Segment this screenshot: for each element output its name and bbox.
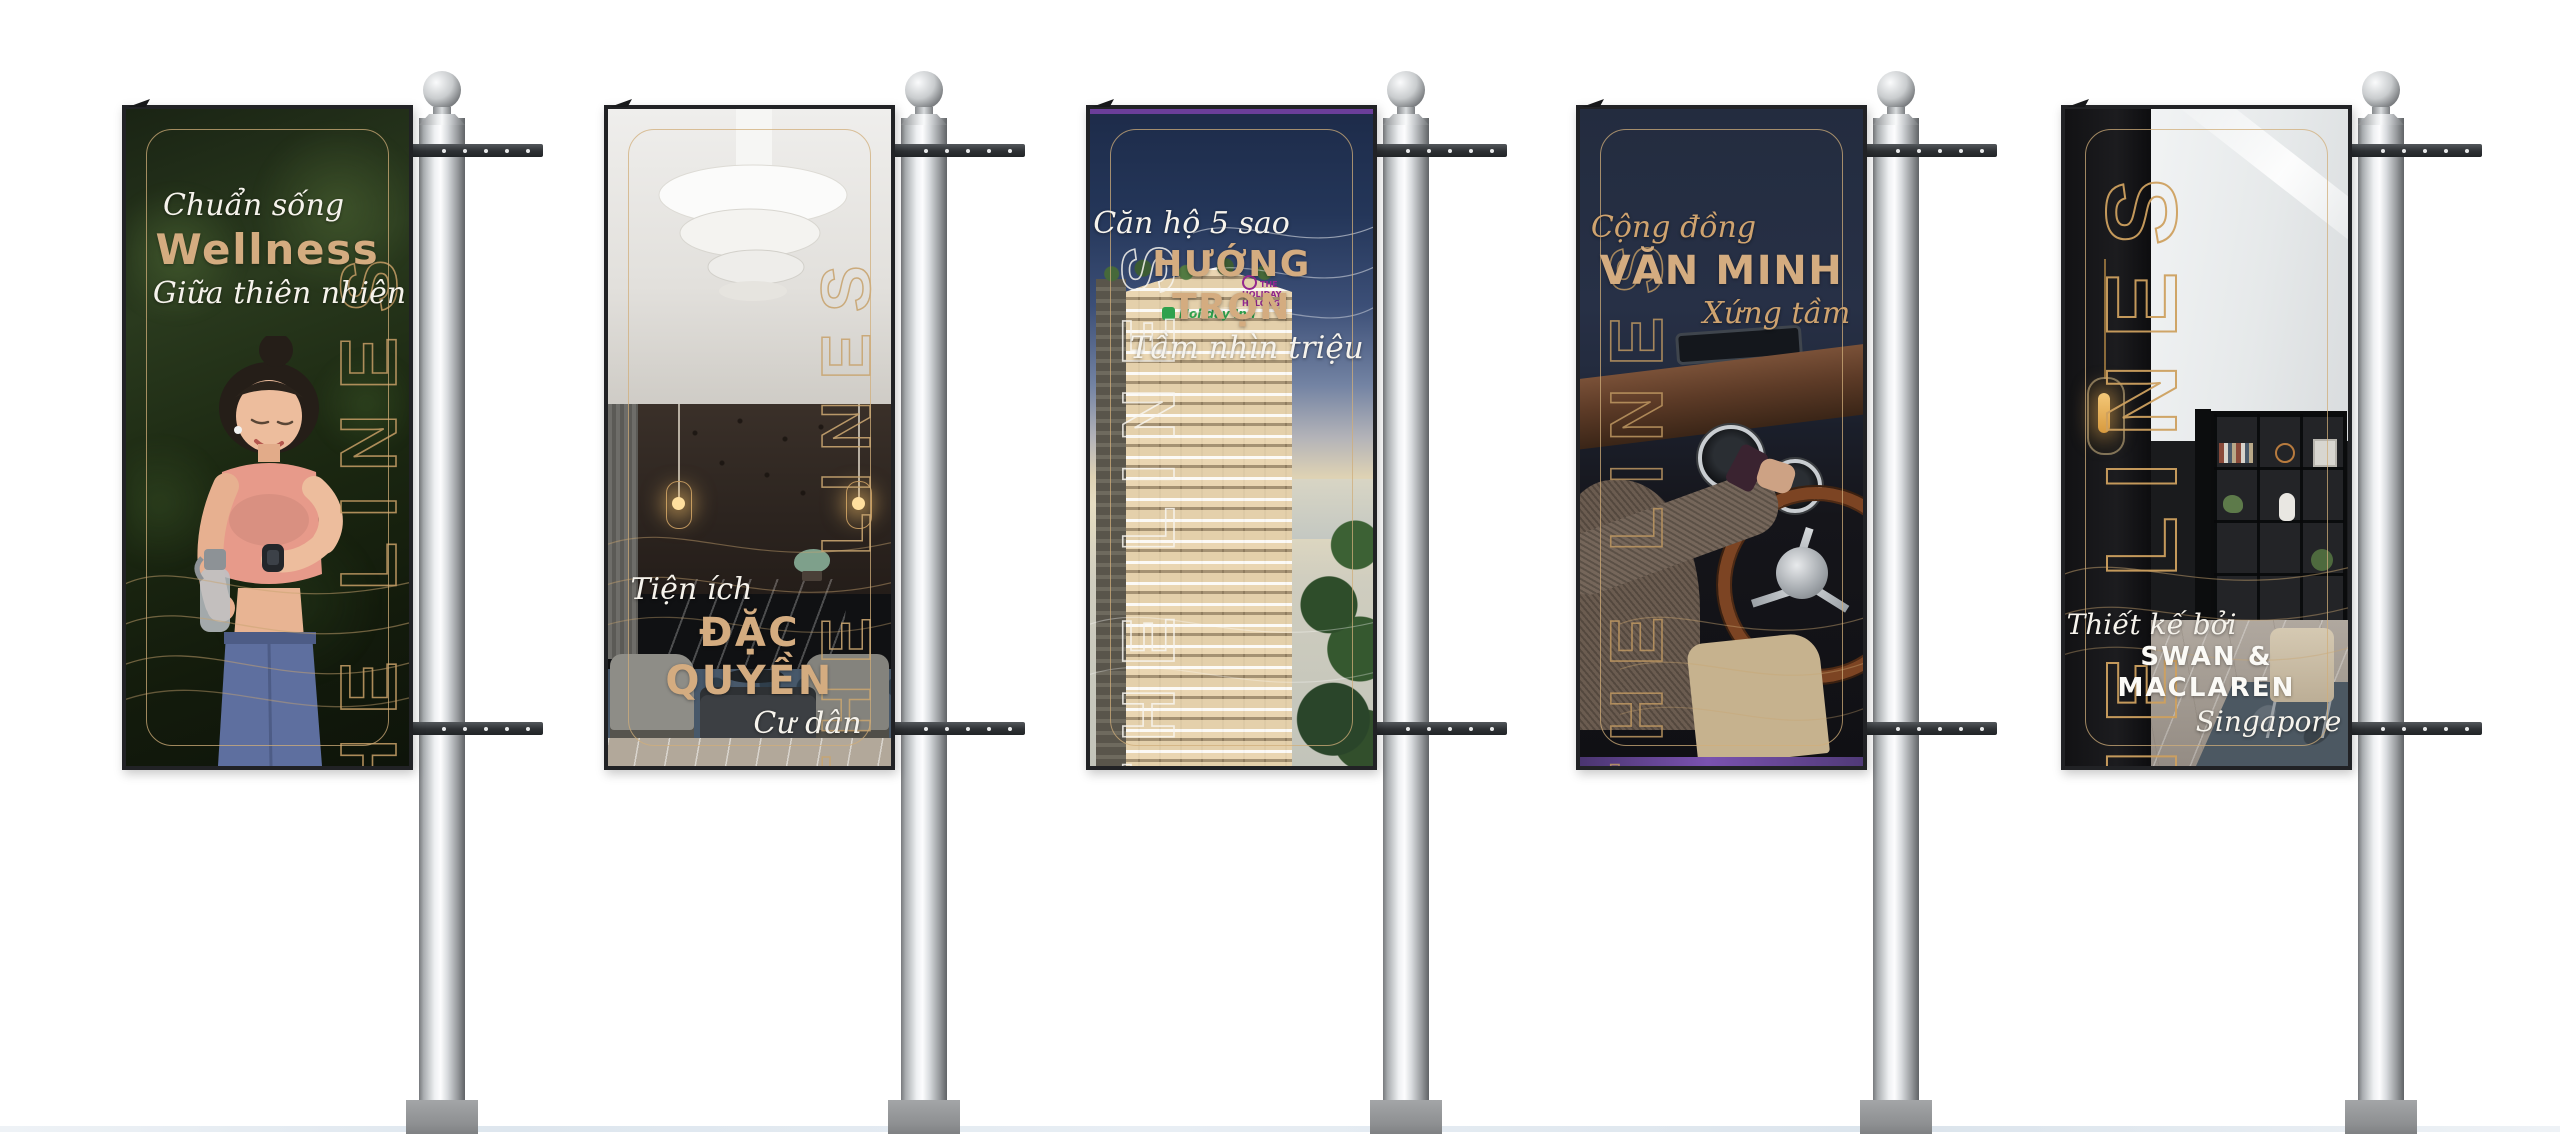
rivet [1896,727,1900,731]
pole-finial-neck [1887,107,1905,115]
vertical-brand-text: THE LINES [323,235,413,770]
chrome-hub [1776,547,1828,599]
rivet [463,149,467,153]
script-line-top: Chuẩn sống [122,187,395,225]
rivet [1427,727,1431,731]
pole-collar [1873,114,1919,125]
banner-pole-unit-4: THE LINES Cộng đồng VĂN MINH Xứng tầm [1576,0,2136,1136]
script-line-top: Thiết kế bởi [2061,607,2293,642]
pole-collar [901,114,947,125]
pole-ball-finial [2362,71,2400,109]
rivet [945,149,949,153]
copper-ring-decor [2275,443,2295,463]
script-line-bottom: Cư dân [666,705,895,743]
rivet [1008,149,1012,153]
rivet [987,727,991,731]
banner-mockup-scene: THE LINES Chuẩn sống Wellness Giữa thiên… [0,0,2560,1136]
rivet [1406,727,1410,731]
rivet [505,149,509,153]
rivet [1980,149,1984,153]
pole-base [888,1100,960,1134]
script-line-top: Căn hộ 5 sao [1086,205,1333,243]
rivet [1469,149,1473,153]
rivet [1938,727,1942,731]
banner-pole-unit-3: Holiday Inn THE HOLIDAY HALONG THE LINES… [1086,0,1646,1136]
rivet [1406,149,1410,153]
rivet [1917,149,1921,153]
rivet [2444,149,2448,153]
banner-pole-unit-1: THE LINES Chuẩn sống Wellness Giữa thiên… [122,0,682,1136]
banner-text-block: Cộng đồng VĂN MINH Xứng tầm [1580,209,1863,332]
flag-pole [901,118,947,1110]
pole-collar [1383,114,1429,125]
rivet [505,727,509,731]
script-line-bottom: Singapore [2127,704,2352,739]
banner-bracket-arm-top [2344,144,2482,157]
books [2219,443,2253,463]
rivet [1469,727,1473,731]
headline: VĂN MINH [1580,247,1863,295]
rivet [2402,727,2406,731]
rivet [1427,149,1431,153]
banner-bracket-arm-top [1369,144,1507,157]
rivet [442,149,446,153]
driver-trousers [1686,631,1830,766]
rivet [2402,149,2406,153]
rivet [1980,727,1984,731]
banner-bracket-arm-top [405,144,543,157]
banner-text-block: Chuẩn sống Wellness Giữa thiên nhiên [126,187,409,312]
pole-finial-neck [2372,107,2390,115]
rivet [1008,727,1012,731]
rivet [1917,727,1921,731]
rivet [526,727,530,731]
rivet [1490,727,1494,731]
rivet [484,727,488,731]
script-line-bottom: Tầm nhìn triệu $ [1120,329,1377,368]
banner-text-block: Thiết kế bởi SWAN & MACLAREN Singapore [2065,607,2348,739]
headline: HƯỚNG TRỌN [1090,243,1373,329]
pole-ball-finial [905,71,943,109]
banner-pole-unit-2: THE LINES Tiện ích ĐẶC QUYỀN Cư dân [604,0,1164,1136]
pole-finial-neck [1397,107,1415,115]
banner-pole-unit-5: THE LINES Thiết kế bởi SWAN & MACLAREN S… [2061,0,2560,1136]
pole-collar [2358,114,2404,125]
headline: ĐẶC QUYỀN [608,609,891,705]
banner-bracket-arm-top [887,144,1025,157]
rivet [2465,727,2469,731]
banner-bracket-arm-bottom [1859,722,1997,735]
shelf-plant [2223,495,2243,513]
banner-bracket-arm-bottom [2344,722,2482,735]
banner-huong-tron: Holiday Inn THE HOLIDAY HALONG THE LINES… [1086,105,1377,770]
pole-finial-neck [433,107,451,115]
rivet [966,149,970,153]
pole-base [406,1100,478,1134]
banner-van-minh: THE LINES Cộng đồng VĂN MINH Xứng tầm [1576,105,1867,770]
rivet [945,727,949,731]
rivet [2423,727,2427,731]
pole-ball-finial [423,71,461,109]
rivet [966,727,970,731]
rivet [924,149,928,153]
rivet [1448,727,1452,731]
banner-dac-quyen: THE LINES Tiện ích ĐẶC QUYỀN Cư dân [604,105,895,770]
rivet [463,727,467,731]
rivet [1490,149,1494,153]
picture-frames [2313,439,2337,467]
pole-base [1860,1100,1932,1134]
coastal-trees [1285,506,1373,766]
banner-bracket-arm-bottom [1369,722,1507,735]
banner-bracket-arm-bottom [887,722,1025,735]
rivet [924,727,928,731]
rivet [1959,149,1963,153]
script-line-top: Tiện ích [604,571,833,609]
rivet [987,149,991,153]
banner-swan-maclaren: THE LINES Thiết kế bởi SWAN & MACLAREN S… [2061,105,2352,770]
flag-pole [1873,118,1919,1110]
banner-bracket-arm-bottom [405,722,543,735]
script-line-bottom: Xứng tầm [1635,295,1867,333]
flag-pole [419,118,465,1110]
rivet [1448,149,1452,153]
pole-base [2345,1100,2417,1134]
banner-text-block: Căn hộ 5 sao HƯỚNG TRỌN Tầm nhìn triệu $ [1090,205,1373,368]
pole-finial-neck [915,107,933,115]
rivet [526,149,530,153]
pole-ball-finial [1877,71,1915,109]
banner-wellness: THE LINES Chuẩn sống Wellness Giữa thiên… [122,105,413,770]
rivet [2465,149,2469,153]
ground-line [0,1126,2560,1132]
pole-collar [419,114,465,125]
banner-bracket-arm-top [1859,144,1997,157]
purple-edge-strip [1090,109,1373,114]
headline: Wellness [126,225,409,275]
flag-pole [2358,118,2404,1110]
headline: SWAN & MACLAREN [2065,642,2348,704]
rivet [442,727,446,731]
rivet [1896,149,1900,153]
pendant-bulb [672,497,685,510]
banner-text-block: Tiện ích ĐẶC QUYỀN Cư dân [608,571,891,742]
pole-base [1370,1100,1442,1134]
rivet [484,149,488,153]
white-vase [2279,493,2295,521]
rivet [2423,149,2427,153]
script-line-bottom: Giữa thiên nhiên [138,275,413,313]
rivet [2381,727,2385,731]
rivet [2381,149,2385,153]
flag-pole [1383,118,1429,1110]
rivet [1959,727,1963,731]
pole-ball-finial [1387,71,1425,109]
rivet [2444,727,2448,731]
lower-plant [2311,549,2333,571]
rivet [1938,149,1942,153]
script-line-top: Cộng đồng [1576,209,1815,247]
